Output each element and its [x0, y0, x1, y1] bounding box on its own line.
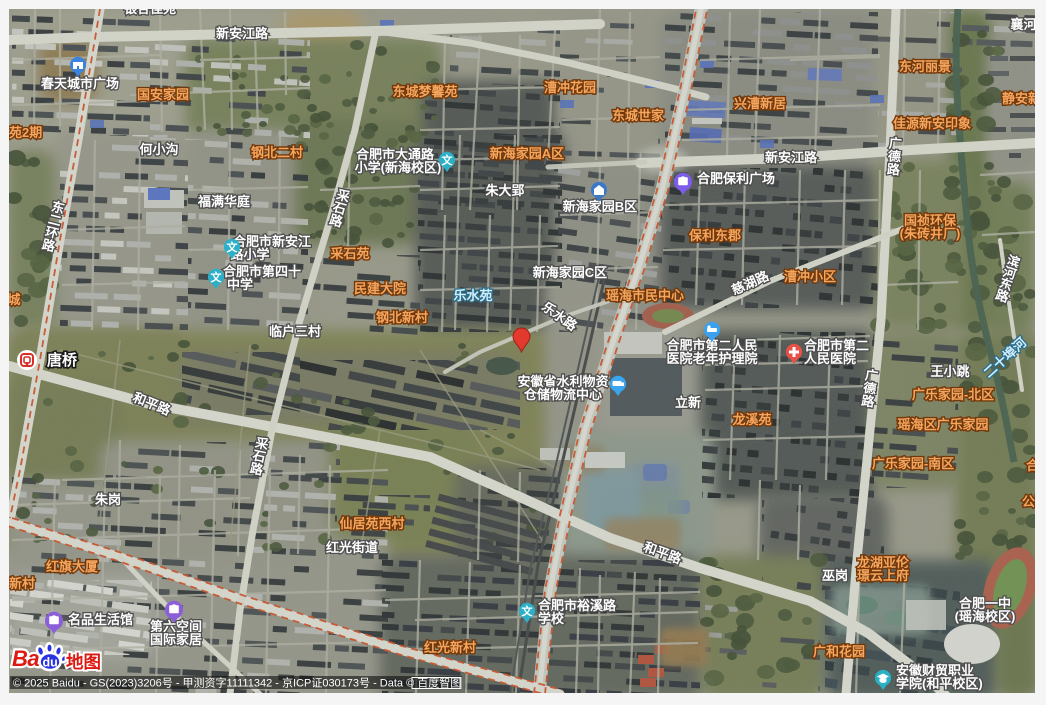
svg-text:巫岗: 巫岗	[822, 568, 848, 583]
svg-text:学校: 学校	[538, 611, 565, 626]
svg-text:公园: 公园	[1022, 494, 1035, 509]
svg-text:新海家园A区: 新海家园A区	[490, 146, 564, 161]
svg-text:春天城市广场: 春天城市广场	[40, 76, 119, 91]
svg-text:临户三村: 临户三村	[269, 324, 321, 339]
svg-text:漕冲花园: 漕冲花园	[544, 80, 596, 95]
svg-text:王小跳: 王小跳	[930, 364, 969, 379]
svg-text:文: 文	[227, 240, 239, 254]
svg-text:新安江路: 新安江路	[765, 150, 818, 165]
svg-text:名品生活馆: 名品生活馆	[68, 612, 133, 627]
svg-text:苑2期: 苑2期	[9, 125, 42, 140]
svg-text:国际家居: 国际家居	[150, 632, 202, 647]
svg-text:钢北新村: 钢北新村	[376, 310, 428, 325]
svg-text:唐桥: 唐桥	[47, 351, 78, 369]
svg-text:保利东郡: 保利东郡	[688, 228, 741, 243]
svg-text:仙居苑西村: 仙居苑西村	[339, 516, 404, 531]
svg-text:小学(新海校区): 小学(新海校区)	[355, 160, 442, 175]
svg-text:璟云上府: 璟云上府	[857, 568, 909, 583]
svg-text:du: du	[43, 656, 58, 670]
svg-text:何小沟: 何小沟	[139, 142, 178, 157]
svg-text:襄河湾: 襄河湾	[1009, 17, 1035, 32]
svg-text:路: 路	[886, 162, 901, 178]
svg-text:新安江路: 新安江路	[216, 26, 269, 41]
svg-text:钢北二村: 钢北二村	[251, 145, 303, 160]
svg-text:朱大郢: 朱大郢	[484, 183, 524, 198]
svg-text:(朱砖井厂): (朱砖井厂)	[900, 226, 961, 241]
svg-text:乐水苑: 乐水苑	[453, 288, 492, 303]
svg-text:立新: 立新	[675, 395, 701, 410]
svg-text:文: 文	[442, 153, 454, 167]
svg-text:医院老年护理院: 医院老年护理院	[666, 351, 757, 366]
svg-text:学院(和平校区): 学院(和平校区)	[896, 676, 983, 691]
svg-text:瑶海区广乐家园: 瑶海区广乐家园	[897, 417, 988, 432]
svg-text:东城世家: 东城世家	[612, 108, 665, 123]
svg-text:国安家园: 国安家园	[137, 87, 189, 102]
svg-text:© 2025 Baidu - GS(2023)3206号 -: © 2025 Baidu - GS(2023)3206号 - 甲测资字11111…	[13, 676, 461, 690]
svg-text:红旗大厦: 红旗大厦	[46, 559, 99, 574]
svg-text:新海家园B区: 新海家园B区	[563, 199, 637, 214]
svg-text:静安新城: 静安新城	[1002, 91, 1035, 106]
svg-text:民建大院: 民建大院	[354, 281, 406, 296]
svg-text:红光新村: 红光新村	[424, 640, 476, 655]
svg-text:广和花园: 广和花园	[813, 644, 865, 659]
svg-text:东河丽景: 东河丽景	[899, 59, 951, 74]
svg-text:新村: 新村	[9, 576, 35, 591]
svg-text:新海家园C区: 新海家园C区	[533, 265, 607, 280]
svg-text:地图: 地图	[66, 652, 101, 672]
svg-text:朱岗: 朱岗	[94, 492, 121, 507]
svg-text:广乐家园-北区: 广乐家园-北区	[912, 387, 994, 402]
svg-text:文: 文	[211, 270, 223, 284]
svg-text:漕冲小区: 漕冲小区	[784, 269, 836, 284]
svg-text:兴漕新居: 兴漕新居	[734, 96, 786, 111]
svg-text:佳源新安印象: 佳源新安印象	[893, 116, 971, 131]
svg-text:城: 城	[9, 292, 21, 307]
svg-text:东城梦馨苑: 东城梦馨苑	[392, 84, 457, 99]
svg-text:广乐家园-南区: 广乐家园-南区	[872, 456, 954, 471]
svg-text:瑶海市民中心: 瑶海市民中心	[606, 288, 684, 303]
svg-text:中学: 中学	[227, 277, 253, 292]
svg-text:合肥: 合肥	[1026, 458, 1035, 473]
svg-text:文: 文	[522, 604, 534, 618]
svg-text:龙溪苑: 龙溪苑	[732, 412, 771, 427]
svg-text:福满华庭: 福满华庭	[197, 194, 251, 209]
svg-text:银杏佳苑: 银杏佳苑	[124, 9, 176, 16]
svg-text:采石苑: 采石苑	[329, 246, 369, 261]
svg-text:合肥保利广场: 合肥保利广场	[697, 171, 775, 186]
svg-text:人民医院: 人民医院	[804, 351, 856, 366]
svg-text:(瑶海校区): (瑶海校区)	[955, 609, 1016, 624]
svg-text:仓储物流中心: 仓储物流中心	[523, 387, 602, 402]
svg-text:红光街道: 红光街道	[326, 540, 378, 555]
